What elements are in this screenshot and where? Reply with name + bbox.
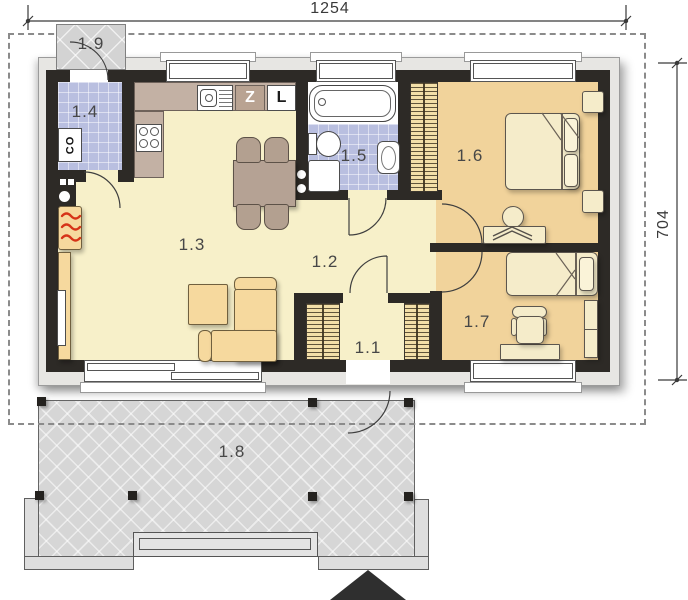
office-chair-seat: [516, 316, 544, 344]
terrace-doorway: [346, 360, 390, 384]
sink-drain: [205, 94, 213, 102]
window: [166, 60, 250, 82]
wall-segment: [388, 293, 430, 303]
sofa-armrest: [198, 330, 212, 362]
floor-plan: Z L CO: [0, 0, 688, 600]
stove-burner: [139, 139, 148, 148]
terrace-step-inner: [139, 538, 311, 550]
wall-segment: [118, 170, 134, 182]
boiler: CO: [58, 128, 82, 162]
room-label-1-6: 1.6: [457, 146, 484, 166]
doorway-room-1-6: [430, 200, 442, 243]
pillow: [579, 257, 594, 291]
dining-chair: [236, 204, 261, 230]
dishwasher-letter: Z: [245, 89, 255, 107]
room-label-1-1: 1.1: [355, 338, 382, 358]
room-label-1-9: 1.9: [78, 34, 105, 54]
dishwasher-marker: Z: [235, 85, 265, 111]
bed-head-line: [575, 253, 577, 295]
terrace-post: [35, 491, 44, 500]
window-frame: [169, 63, 247, 79]
dining-table: [233, 160, 296, 207]
boiler-label: CO: [64, 136, 76, 155]
room-label-1-4: 1.4: [72, 102, 99, 122]
shelf-unit: [584, 300, 598, 358]
terrace-post: [128, 491, 137, 500]
bathtub-drain: [318, 98, 326, 106]
desk: [500, 344, 560, 360]
plumbing-stack: [297, 184, 306, 193]
direction-triangle-icon: [330, 570, 406, 600]
wardrobe: [410, 82, 438, 192]
stove-burner: [139, 127, 148, 136]
entrance-doorway: [70, 70, 108, 82]
sliding-door-panel: [171, 372, 259, 380]
wall-segment: [294, 293, 306, 360]
dressing-table: [483, 226, 546, 244]
terrace-edge-paving: [318, 556, 429, 570]
room-label-1-5: 1.5: [341, 146, 368, 166]
tv: [57, 290, 66, 346]
nightstand: [582, 190, 604, 213]
window: [470, 360, 576, 382]
room-label-1-8: 1.8: [219, 442, 246, 462]
terrace-edge-paving: [24, 556, 134, 570]
bed-head-line: [561, 114, 563, 189]
sink-drainer: [219, 90, 232, 107]
flue-vent: [68, 179, 74, 185]
window-frame: [473, 363, 573, 379]
flue-vent: [60, 179, 66, 185]
window-sill: [464, 382, 582, 393]
window: [316, 60, 396, 82]
window-frame: [319, 63, 393, 79]
dimension-width: 1254: [310, 0, 350, 18]
plumbing-stack: [297, 170, 306, 179]
nightstand: [582, 91, 604, 113]
dining-chair: [236, 137, 261, 163]
coffee-table: [188, 284, 228, 325]
window-frame: [473, 63, 573, 79]
stool: [502, 206, 524, 228]
fridge-letter: L: [277, 89, 287, 107]
shelf-divider: [585, 329, 597, 330]
terrace-post: [404, 492, 413, 501]
window-sill: [80, 382, 266, 393]
dimension-height: 704: [655, 209, 673, 239]
doorway-room-1-7: [430, 252, 442, 291]
room-label-1-7: 1.7: [464, 312, 491, 332]
stove-burner: [150, 127, 159, 136]
fireplace: [58, 206, 82, 250]
wall-segment: [122, 82, 134, 182]
fridge-marker: L: [267, 85, 296, 111]
sliding-door-panel: [87, 363, 175, 371]
room-label-1-2: 1.2: [312, 252, 339, 272]
terrace-steps: [133, 532, 318, 557]
stove-burner: [150, 139, 159, 148]
sofa-seat: [211, 330, 277, 362]
flue-round: [59, 191, 70, 202]
wardrobe: [306, 303, 340, 360]
washing-machine: [308, 160, 340, 192]
wall-segment: [398, 82, 410, 192]
wall-segment: [442, 243, 598, 252]
toilet-bowl: [316, 131, 341, 157]
window: [470, 60, 576, 82]
terrace-post: [308, 492, 317, 501]
wardrobe: [404, 303, 430, 360]
dim-tick: [672, 58, 682, 385]
washbasin-bowl: [381, 146, 396, 170]
wall-segment: [296, 82, 308, 200]
dining-chair: [264, 204, 289, 230]
dining-chair: [264, 137, 289, 163]
pillow: [564, 118, 578, 152]
pillow: [564, 154, 578, 187]
room-label-1-3: 1.3: [179, 235, 206, 255]
